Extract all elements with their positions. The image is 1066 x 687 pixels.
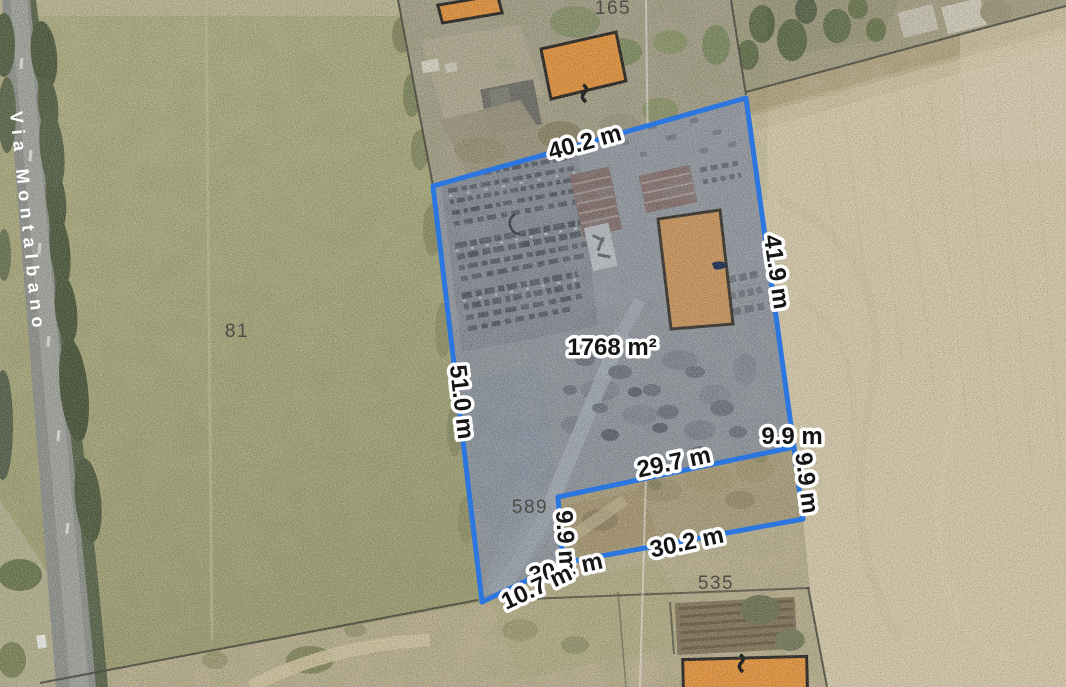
svg-text:81: 81 (225, 321, 249, 342)
svg-text:1768 m²: 1768 m² (567, 334, 656, 361)
svg-text:165: 165 (595, 0, 631, 19)
svg-text:9.9 m: 9.9 m (761, 423, 822, 450)
svg-text:535: 535 (698, 573, 734, 594)
svg-text:589: 589 (512, 497, 548, 518)
